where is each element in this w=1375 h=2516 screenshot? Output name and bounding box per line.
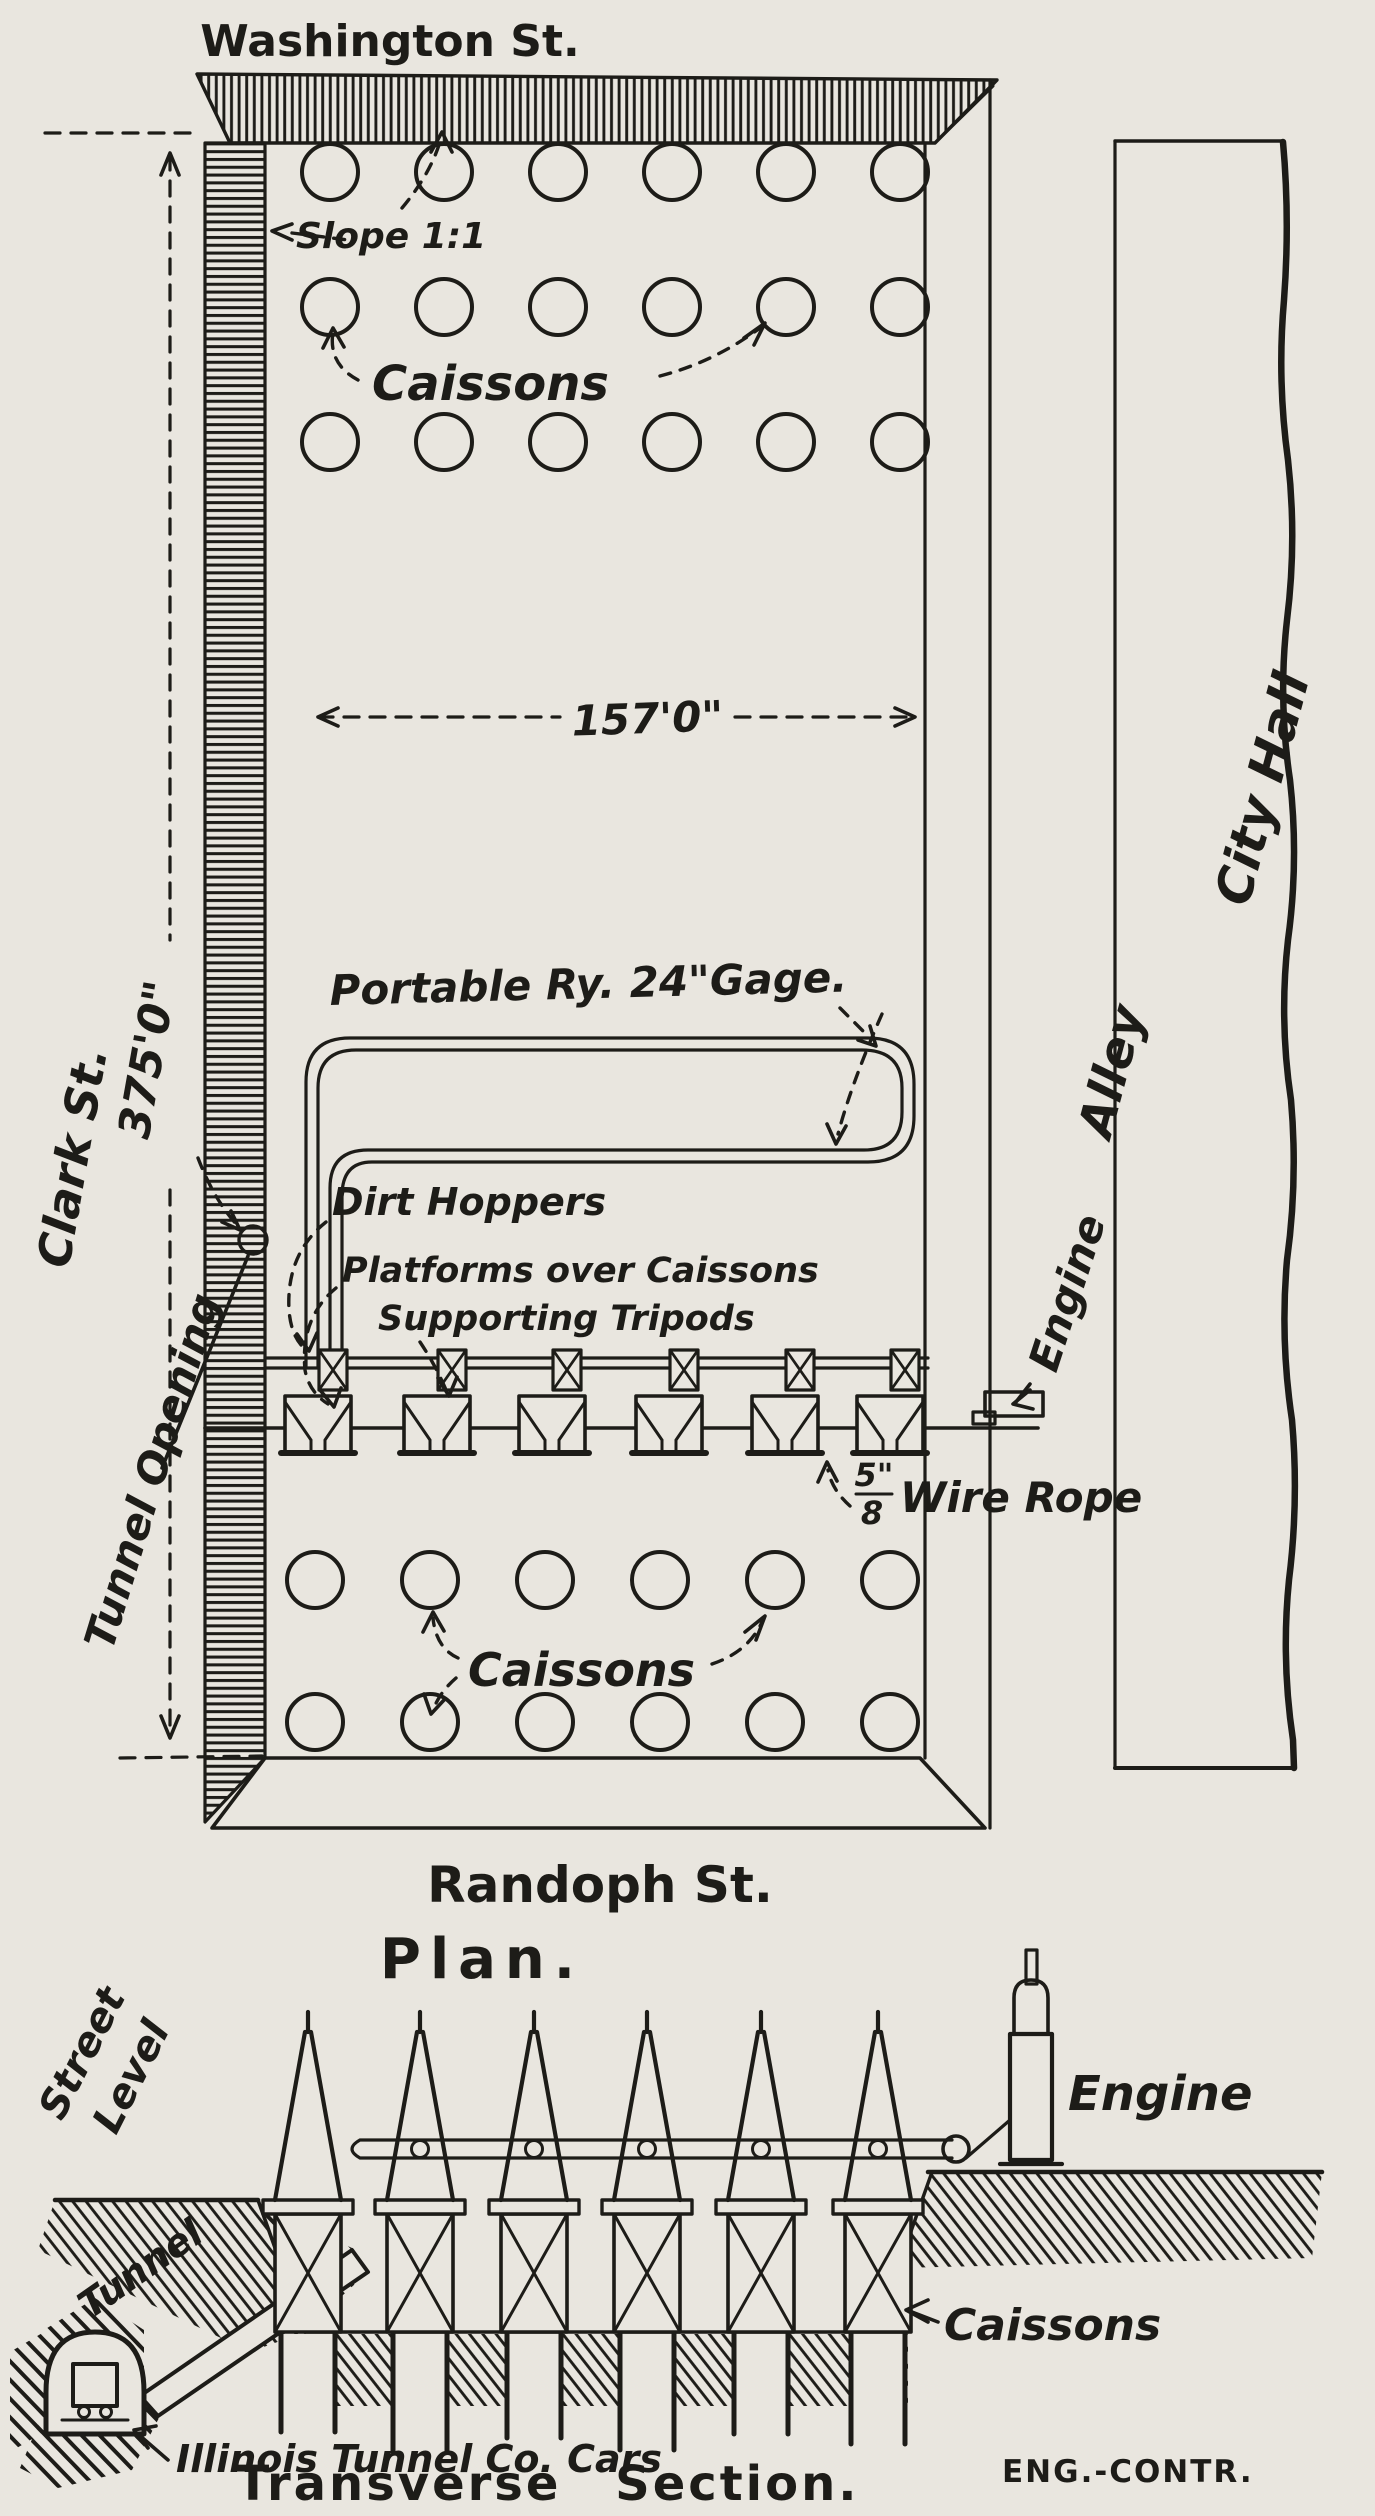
caisson-circle	[747, 1694, 803, 1750]
street-bottom-title: Randoph St.	[427, 1856, 773, 1914]
caisson-circle	[302, 144, 358, 200]
caisson-circle	[758, 414, 814, 470]
drawing-sheet: 157'0" Clark St. 375'0" Slope 1:1 Caisso…	[0, 0, 1375, 2516]
cable-pulley-icon	[526, 2141, 543, 2158]
platform-cap	[489, 2200, 579, 2214]
caisson-circle	[302, 414, 358, 470]
clark-st-wall-band	[205, 143, 265, 1822]
hopper-units	[281, 1350, 927, 1453]
hoisting-cable	[352, 2120, 1010, 2162]
caisson-circle	[758, 144, 814, 200]
section-caissons-callout: Caissons	[906, 2300, 1161, 2351]
cable-pulley-icon	[753, 2141, 770, 2158]
caisson-circle	[644, 414, 700, 470]
section-engine: Engine	[1000, 1950, 1253, 2164]
caisson-circle	[302, 279, 358, 335]
platform-cap	[716, 2200, 806, 2214]
rope-fraction-denominator: 8	[861, 1494, 883, 1532]
platform-cap	[263, 2200, 353, 2214]
caisson-shaft-mask	[734, 2334, 788, 2434]
alley-label: Alley	[1066, 998, 1156, 1147]
caissons-bottom-callout: Caissons	[423, 1612, 765, 1714]
platform-square	[857, 1396, 923, 1452]
caisson-shaft-mask	[620, 2334, 674, 2450]
plan-engine-label: Engine	[1019, 1208, 1115, 1377]
credit-label: ENG.-CONTR.	[1002, 2454, 1254, 2490]
washington-st-wall-band	[197, 74, 997, 143]
caisson-shaft-mask	[507, 2334, 561, 2438]
platform-square	[636, 1396, 702, 1452]
right-ground-hatch	[898, 2172, 1322, 2268]
caisson-circle	[644, 279, 700, 335]
city-hall-wavy-edge	[1281, 142, 1295, 1768]
street-top-title: Washington St.	[200, 16, 579, 67]
platform-square	[752, 1396, 818, 1452]
wire-rope-callout: 5" 8 Wire Rope	[818, 1456, 1142, 1532]
caisson-circle	[416, 279, 472, 335]
caisson-shaft-mask	[393, 2334, 447, 2452]
supporting-tripod	[387, 2012, 453, 2200]
supporting-tripod	[845, 2012, 911, 2200]
cable-pulley-icon	[412, 2141, 429, 2158]
caisson-circle	[872, 414, 928, 470]
arrowhead-icon	[272, 224, 292, 240]
caisson-circle	[402, 1552, 458, 1608]
portable-ry-label: Portable Ry. 24"Gage.	[329, 952, 848, 1015]
supporting-tripod	[275, 2012, 341, 2200]
platform-cap	[375, 2200, 465, 2214]
dim-width-label: 157'0"	[571, 691, 724, 745]
wire-rope-label: Wire Rope	[900, 1473, 1142, 1522]
caisson-circle	[530, 279, 586, 335]
caissons-top-callout: Caissons	[323, 323, 765, 412]
plan-title: Plan.	[380, 1927, 584, 1992]
caisson-circle	[862, 1552, 918, 1608]
width-dimension: 157'0"	[318, 691, 915, 745]
caisson-circle	[872, 144, 928, 200]
caisson-circle	[530, 144, 586, 200]
platform-square	[519, 1396, 585, 1452]
platform-cap	[833, 2200, 923, 2214]
platforms-label: Platforms over Caissons	[342, 1251, 819, 1291]
caissons-top-label: Caissons	[372, 356, 609, 412]
caisson-circle	[287, 1694, 343, 1750]
caisson-circle	[517, 1552, 573, 1608]
platform-cap	[602, 2200, 692, 2214]
dim-height-label: 375'0"	[109, 977, 187, 1142]
right-side-labels: Engine Alley City Hall	[1013, 666, 1321, 1409]
tripods-label: Supporting Tripods	[378, 1299, 755, 1339]
caisson-circle	[872, 279, 928, 335]
caisson-circle	[402, 1694, 458, 1750]
caissons-bottom-label: Caissons	[468, 1643, 695, 1697]
section-engine-label: Engine	[1068, 2066, 1253, 2122]
caisson-circle	[517, 1694, 573, 1750]
caisson-shaft-mask	[851, 2334, 905, 2444]
caisson-grid-top	[302, 144, 928, 470]
engineering-drawing: 157'0" Clark St. 375'0" Slope 1:1 Caisso…	[0, 0, 1375, 2516]
caisson-circle	[758, 279, 814, 335]
platform-square	[404, 1396, 470, 1452]
caisson-shaft-mask	[281, 2334, 335, 2432]
caisson-circle	[416, 414, 472, 470]
supporting-tripod	[614, 2012, 680, 2200]
slope-callout: Slope 1:1	[272, 132, 486, 257]
arrowhead-icon	[744, 323, 765, 345]
platform-square	[285, 1396, 351, 1452]
rope-fraction-numerator: 5"	[855, 1456, 894, 1494]
section-title: Transverse Section.	[237, 2456, 860, 2512]
randolph-st-wall-band	[212, 1758, 985, 1828]
caisson-circle	[747, 1552, 803, 1608]
cable-pulley-icon	[870, 2141, 887, 2158]
supporting-tripod	[728, 2012, 794, 2200]
caisson-circle	[632, 1694, 688, 1750]
caisson-circle	[416, 144, 472, 200]
cable-pulley-icon	[639, 2141, 656, 2158]
caisson-circle	[862, 1694, 918, 1750]
caisson-circle	[632, 1552, 688, 1608]
section-caissons-label: Caissons	[944, 2300, 1161, 2351]
city-hall-building	[1115, 141, 1295, 1768]
supporting-tripod	[501, 2012, 567, 2200]
excavation-walls	[197, 74, 997, 1828]
street-left-label: Clark St.	[26, 1043, 118, 1271]
caisson-circle	[287, 1552, 343, 1608]
city-hall-label: City Hall	[1204, 666, 1322, 911]
caisson-circle	[644, 144, 700, 200]
dirt-hoppers-label: Dirt Hoppers	[332, 1180, 606, 1224]
portable-ry-callout: Portable Ry. 24"Gage.	[329, 952, 882, 1144]
caisson-circle	[530, 414, 586, 470]
